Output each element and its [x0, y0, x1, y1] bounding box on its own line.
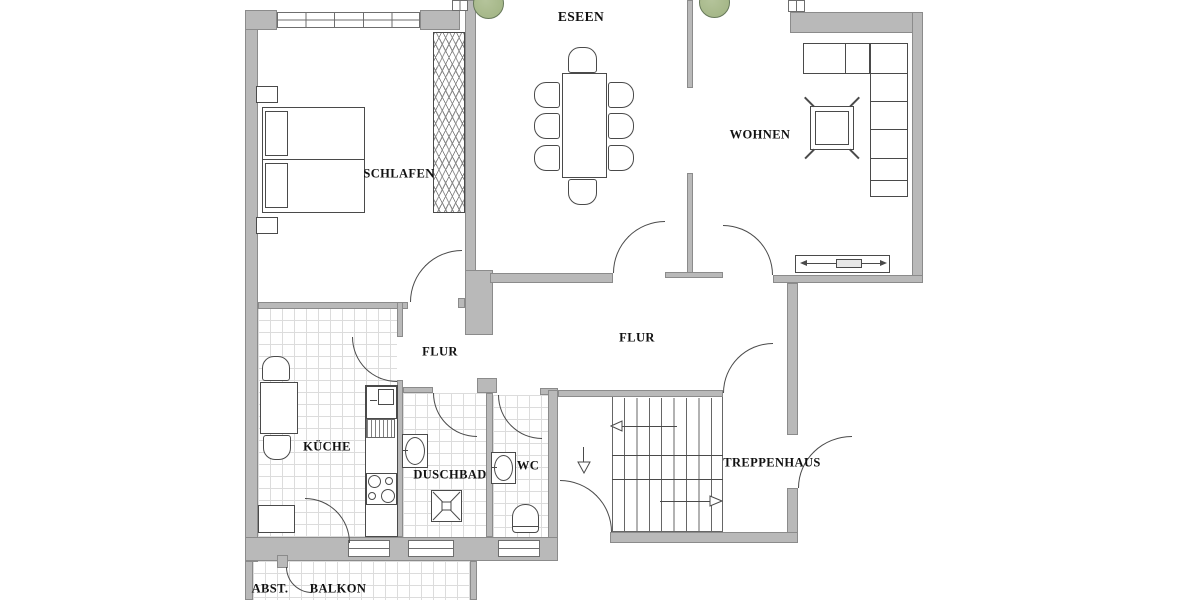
wall	[558, 390, 723, 397]
sideboard-arrow	[806, 263, 836, 264]
dining-chair	[534, 113, 560, 139]
dining-chair	[534, 145, 560, 171]
sideboard-item	[836, 259, 862, 268]
table-leg	[804, 149, 814, 159]
sofa-cushion-line	[871, 158, 907, 159]
kitchen-chair	[263, 435, 291, 460]
burner	[368, 475, 381, 488]
balcony-rail	[470, 561, 477, 600]
arrow-down-icon	[577, 461, 591, 474]
stair-steps	[624, 398, 723, 531]
wall	[465, 0, 476, 273]
stair-arrow-line	[622, 426, 677, 427]
shower-cross	[432, 491, 461, 521]
toilet-seat-line	[513, 526, 538, 527]
sofa	[870, 43, 908, 197]
stair-landing-line	[612, 455, 723, 456]
washbasin-bowl	[405, 437, 425, 465]
wall	[397, 302, 403, 337]
kitchen-chair	[262, 356, 290, 381]
window	[452, 0, 468, 11]
wall	[912, 12, 923, 283]
tree-icon	[473, 0, 504, 19]
faucet	[403, 450, 408, 451]
sofa-cushion-line	[871, 180, 907, 181]
window	[277, 12, 420, 28]
stairwell-lower-door-arc	[560, 480, 612, 532]
dining-chair	[534, 82, 560, 108]
wall	[477, 378, 497, 393]
wall	[773, 275, 923, 283]
wall	[610, 532, 798, 543]
coffee-table-inner	[815, 111, 849, 145]
window	[348, 540, 390, 557]
dining-chair	[608, 145, 634, 171]
stair-landing-line	[612, 479, 723, 480]
wall	[403, 387, 433, 393]
schlafen-door-arc	[410, 250, 462, 302]
sideboard-arrow-head	[800, 260, 807, 266]
dining-table	[562, 73, 607, 178]
dining-chair	[568, 47, 597, 73]
wall	[787, 283, 798, 435]
bed-divider	[263, 159, 364, 160]
pillow	[265, 163, 288, 208]
toilet	[512, 504, 539, 533]
room-label-flur-small: FLUR	[422, 345, 458, 360]
dining-chair	[608, 113, 634, 139]
arrow-left-icon	[610, 420, 624, 432]
room-label-duschbad: DUSCHBAD	[413, 468, 486, 483]
room-label-treppenhaus: TREPPENHAUS	[723, 456, 820, 471]
sofa-cushion-line	[871, 129, 907, 130]
wall	[245, 10, 277, 30]
wall	[258, 302, 408, 309]
burner	[381, 489, 395, 503]
floor-plan: ESEEN SCHLAFEN WOHNEN FLUR FLUR KÜCHE DU…	[0, 0, 1200, 600]
room-label-schlafen: SCHLAFEN	[363, 167, 434, 182]
essen-door-arc	[613, 221, 665, 273]
sofa-cushion-line	[871, 101, 907, 102]
kitchen-cabinet	[258, 505, 295, 533]
wall	[465, 270, 493, 335]
burner	[385, 477, 393, 485]
wall	[790, 12, 923, 33]
window	[408, 540, 454, 557]
wall	[420, 10, 460, 30]
dishwasher-hatch	[366, 419, 395, 438]
kitchen-table	[260, 382, 298, 434]
sideboard-arrow-head	[880, 260, 887, 266]
room-label-abstellraum: ABST.	[252, 582, 289, 597]
sofa-cushion-line	[871, 73, 907, 74]
room-label-flur-main: FLUR	[619, 331, 655, 346]
dining-chair	[568, 179, 597, 205]
burner	[368, 492, 376, 500]
wohnen-door-arc	[723, 225, 773, 275]
faucet	[370, 400, 377, 401]
room-label-wc: WC	[517, 459, 539, 474]
pillow	[265, 111, 288, 156]
partition-wall	[687, 173, 693, 273]
table-leg	[849, 149, 859, 159]
shower	[431, 490, 462, 522]
apartment-entrance-door-arc	[723, 343, 773, 393]
wall	[665, 272, 723, 278]
table-leg	[849, 97, 859, 107]
nightstand	[256, 217, 278, 234]
room-label-kueche: KÜCHE	[303, 440, 351, 455]
partition-wall	[687, 0, 693, 88]
wardrobe	[433, 32, 465, 213]
sofa-cushion-line	[845, 44, 846, 73]
tree-icon	[699, 0, 730, 18]
window	[498, 540, 540, 557]
window	[788, 0, 805, 12]
wall	[548, 390, 558, 557]
dining-chair	[608, 82, 634, 108]
nightstand	[256, 86, 278, 103]
arrow-right-icon	[709, 495, 723, 507]
room-label-balkon: BALKON	[310, 582, 367, 597]
sideboard-arrow	[862, 263, 880, 264]
kitchen-sink-basin	[378, 389, 394, 405]
faucet	[492, 467, 497, 468]
wall	[490, 273, 613, 283]
stair-arrow-line	[660, 501, 712, 502]
room-label-wohnen: WOHNEN	[730, 128, 791, 143]
room-label-essen: ESEEN	[558, 9, 604, 25]
sofa	[803, 43, 870, 74]
